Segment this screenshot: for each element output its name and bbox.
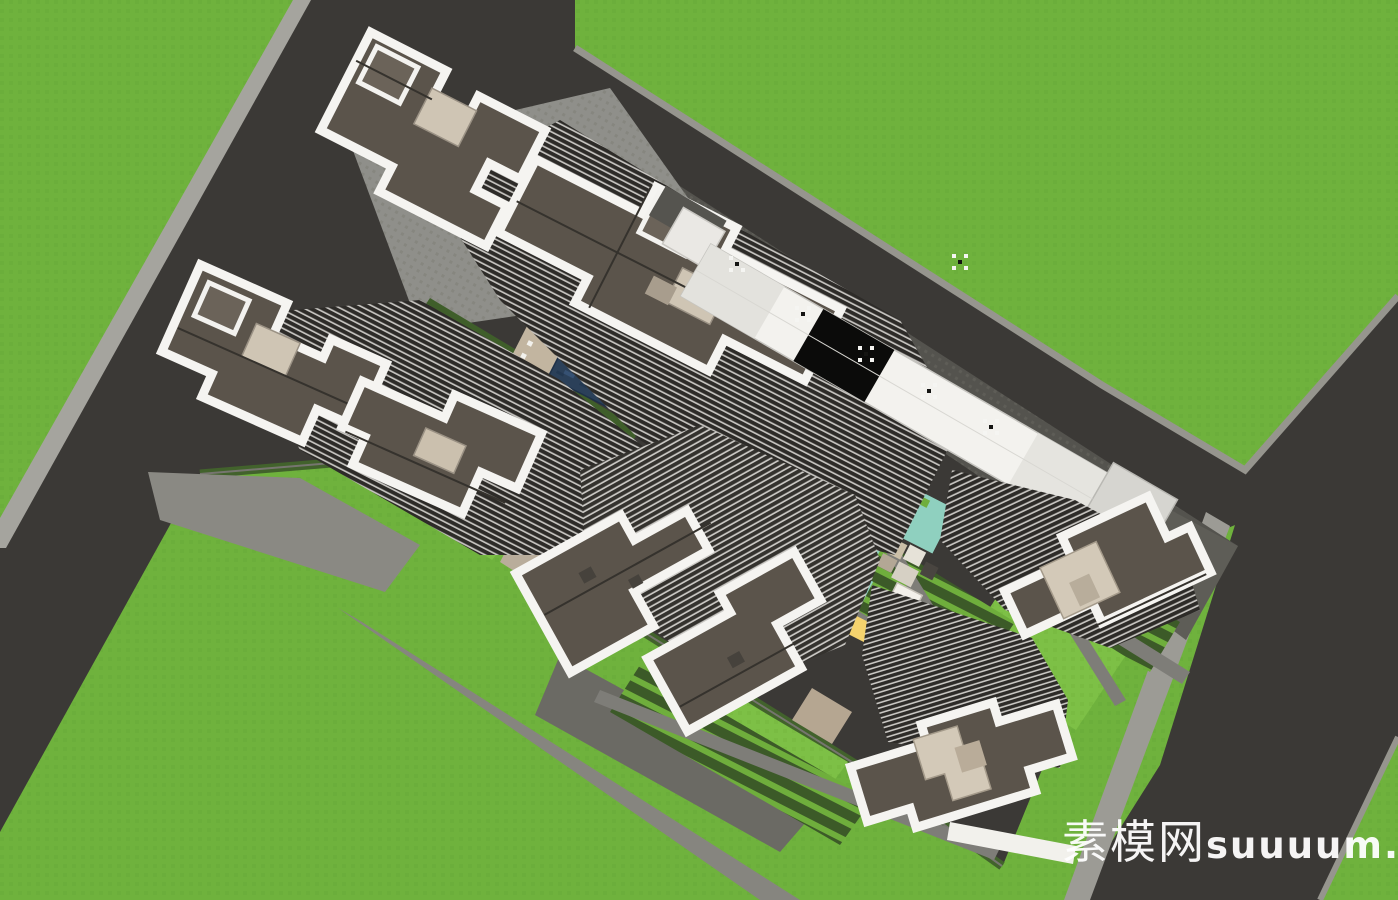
watermark: 素模网suuuum.com bbox=[1062, 815, 1398, 869]
watermark-latin: suuuum.com bbox=[1206, 824, 1398, 867]
site-plan-render: 素模网suuuum.com bbox=[0, 0, 1398, 900]
aerial-site-plan-canvas: 素模网suuuum.com bbox=[0, 0, 1398, 900]
watermark-cjk: 素模网 bbox=[1062, 815, 1206, 869]
